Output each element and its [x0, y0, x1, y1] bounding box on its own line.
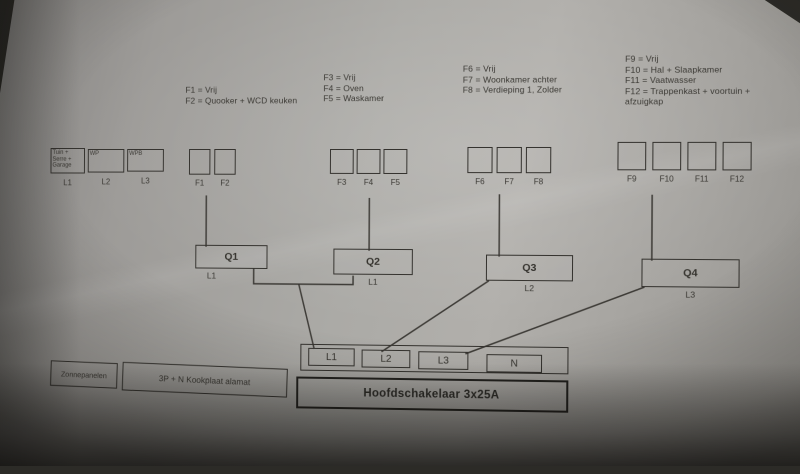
fuse-box	[722, 142, 751, 171]
fuse-f6: F6	[467, 147, 492, 186]
annotation-line: F3 = Vrij	[323, 72, 442, 83]
annotation-group-4: F9 = Vrij F10 = Hal + Slaapkamer F11 = V…	[625, 53, 766, 107]
fuse-box	[383, 149, 407, 174]
main-switch-box: Hoofdschakelaar 3x25A	[296, 377, 568, 413]
fuse-box	[357, 149, 381, 174]
fuse-box	[497, 147, 522, 173]
wire-q3-to-l2	[381, 280, 488, 353]
phase-label: L2	[524, 283, 534, 293]
fuse-f8: F8	[526, 147, 552, 186]
feeder-box: Tuin + Serre + Garage	[50, 148, 85, 173]
annotation-line: F4 = Oven	[323, 82, 442, 93]
fuse-label: F12	[730, 175, 744, 184]
wire-bus-to-l1	[298, 284, 314, 349]
fuse-group-3: F6 F7 F8	[467, 147, 551, 186]
fuse-box	[687, 142, 716, 171]
fuse-label: F5	[391, 178, 400, 187]
fuse-f12: F12	[722, 142, 751, 184]
fuse-f7: F7	[496, 147, 521, 186]
phase-label: L3	[685, 289, 695, 299]
fuse-label: F3	[337, 178, 346, 187]
fuse-f11: F11	[687, 142, 716, 184]
annotation-line: F7 = Woonkamer achter	[463, 73, 615, 84]
terminal-n: N	[486, 354, 542, 373]
terminal-strip: L1 L2 L3 N	[300, 344, 568, 375]
fuse-group-1: F1 F2	[189, 149, 236, 188]
fuse-label: F10	[660, 174, 674, 183]
annotation-group-2: F3 = Vrij F4 = Oven F5 = Waskamer	[323, 72, 442, 104]
zonnepanelen-box: Zonnepanelen	[50, 360, 118, 388]
breaker-box: Q1	[195, 245, 267, 269]
phase-label: L1	[207, 271, 216, 281]
fuse-box	[467, 147, 492, 173]
fuse-box	[617, 142, 646, 170]
breaker-q3: Q3 L2	[486, 255, 573, 294]
breaker-q2: Q2 L1	[333, 249, 413, 288]
fuse-label: F7	[504, 177, 513, 186]
fuse-f10: F10	[652, 142, 681, 184]
fuse-box	[330, 149, 354, 174]
feeder-box: WP	[88, 149, 125, 173]
breaker-box: Q3	[486, 255, 573, 282]
breaker-box: Q4	[641, 259, 739, 288]
fuse-box	[214, 149, 236, 175]
fuse-f5: F5	[383, 149, 407, 187]
phase-label: L1	[368, 277, 377, 287]
fuse-label: F4	[364, 178, 373, 187]
terminal-l3: L3	[418, 351, 468, 370]
feeder-box: WPB	[127, 149, 164, 172]
fuse-label: F6	[475, 177, 484, 186]
annotation-line: F10 = Hal + Slaapkamer	[625, 64, 766, 75]
terminal-l2: L2	[362, 350, 411, 369]
breaker-q1: Q1 L1	[195, 245, 267, 281]
fuse-box	[652, 142, 681, 170]
fuse-f4: F4	[357, 149, 381, 187]
fuse-f2: F2	[214, 149, 236, 188]
annotation-line: F9 = Vrij	[625, 53, 766, 64]
breaker-box: Q2	[333, 249, 413, 276]
fuse-f9: F9	[617, 142, 646, 184]
phase-label: L2	[102, 177, 111, 186]
annotation-line: F5 = Waskamer	[323, 93, 442, 104]
fuse-box	[526, 147, 551, 173]
fuse-label: F2	[220, 179, 229, 188]
feeder-wpb: WPB L3	[127, 149, 164, 185]
fuse-group-2: F3 F4 F5	[330, 149, 408, 187]
annotation-group-3: F6 = Vrij F7 = Woonkamer achter F8 = Ver…	[463, 63, 615, 95]
fuse-group-4: F9 F10 F11 F12	[617, 142, 751, 184]
fuse-label: F9	[627, 174, 637, 183]
annotation-line: F12 = Trappenkast + voortuin + afzuigkap	[625, 85, 766, 107]
fuse-f1: F1	[189, 149, 211, 188]
annotation-line: F8 = Verdieping 1, Zolder	[463, 84, 615, 95]
fuse-f3: F3	[330, 149, 354, 187]
phase-label: L3	[141, 177, 150, 186]
fuse-label: F8	[534, 177, 544, 186]
electrical-diagram: F1 = Vrij F2 = Quooker + WCD keuken F3 =…	[10, 0, 800, 474]
photographed-schematic: F1 = Vrij F2 = Quooker + WCD keuken F3 =…	[0, 0, 800, 466]
breaker-q4: Q4 L3	[641, 259, 739, 301]
annotation-line: F11 = Vaatwasser	[625, 74, 766, 85]
phase-label: L1	[63, 178, 72, 187]
terminal-l1: L1	[308, 348, 355, 367]
fuse-box	[189, 149, 211, 175]
annotation-line: F6 = Vrij	[463, 63, 615, 74]
feeder-wp: WP L2	[88, 149, 125, 186]
feeder-tuin-serre-garage: Tuin + Serre + Garage L1	[50, 148, 85, 187]
fuse-label: F1	[195, 179, 204, 188]
fuse-label: F11	[695, 174, 709, 183]
